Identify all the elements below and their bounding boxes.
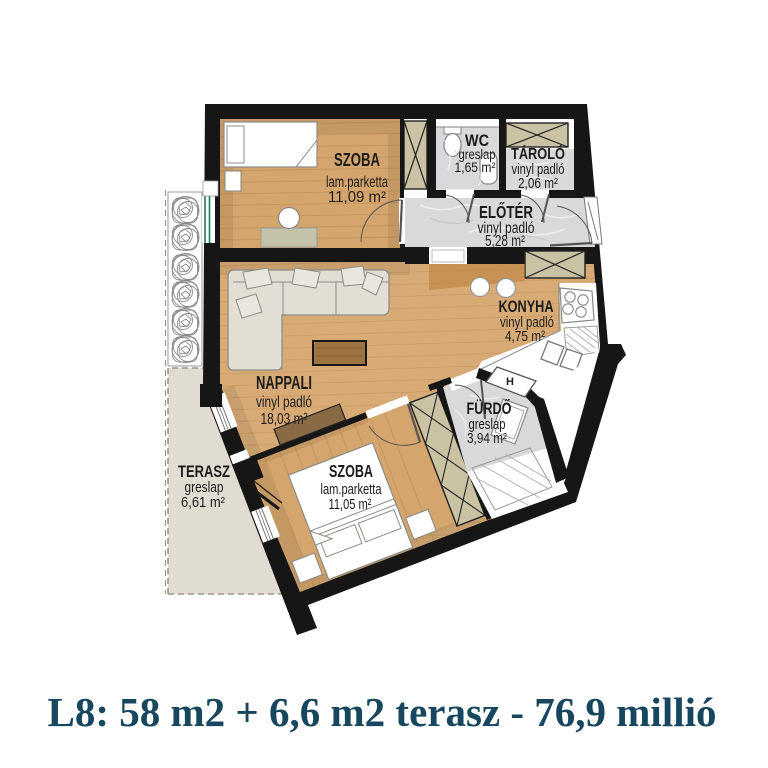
svg-text:greslap: greslap — [185, 480, 224, 496]
svg-text:11,09 m²: 11,09 m² — [328, 189, 386, 206]
svg-text:FÜRDŐ: FÜRDŐ — [467, 399, 512, 418]
svg-text:ELŐTÉR: ELŐTÉR — [479, 201, 533, 222]
svg-text:TÁROLÓ: TÁROLÓ — [511, 145, 565, 163]
svg-text:SZOBA: SZOBA — [329, 461, 373, 481]
svg-text:1,65 m²: 1,65 m² — [455, 159, 496, 175]
svg-text:L8: 58 m2 + 6,6 m2 terasz - 76: L8: 58 m2 + 6,6 m2 terasz - 76,9 millió — [48, 689, 717, 735]
svg-text:SZOBA: SZOBA — [334, 150, 380, 170]
svg-text:NAPPALI: NAPPALI — [256, 373, 312, 393]
svg-text:2,06 m²: 2,06 m² — [518, 176, 558, 192]
svg-text:18,03 m²: 18,03 m² — [261, 411, 309, 428]
svg-text:5,28 m²: 5,28 m² — [485, 233, 525, 250]
svg-text:TERASZ: TERASZ — [178, 463, 230, 481]
svg-text:3,94 m²: 3,94 m² — [467, 431, 507, 447]
svg-text:vinyl padló: vinyl padló — [256, 394, 312, 411]
svg-text:11,05 m²: 11,05 m² — [329, 496, 372, 513]
svg-text:4,75 m²: 4,75 m² — [505, 328, 545, 345]
svg-text:H: H — [506, 376, 514, 388]
svg-text:6,61 m²: 6,61 m² — [181, 495, 225, 511]
